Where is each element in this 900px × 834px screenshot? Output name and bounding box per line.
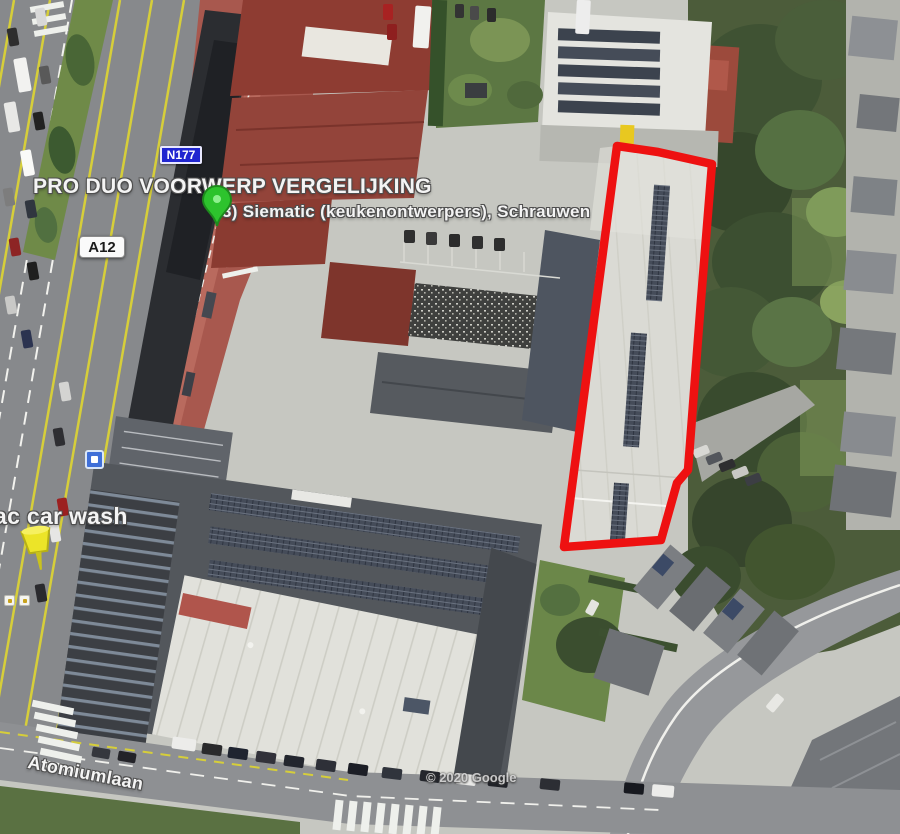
satellite-map-view[interactable]: PRO DUO VOORWERP VERGELIJKING 3) Siemati… [0, 0, 900, 834]
garden-courtyard [428, 0, 545, 128]
aerial-imagery [0, 0, 900, 834]
crosswalk-top-left [30, 1, 69, 37]
green-pin-highlight [213, 195, 221, 203]
yellow-pushpin-marker[interactable] [14, 522, 62, 576]
green-pin-body [203, 186, 231, 226]
solar-roof-building [539, 12, 718, 167]
yellow-pin-needle [35, 552, 43, 571]
green-placemark-pin[interactable] [200, 184, 234, 228]
